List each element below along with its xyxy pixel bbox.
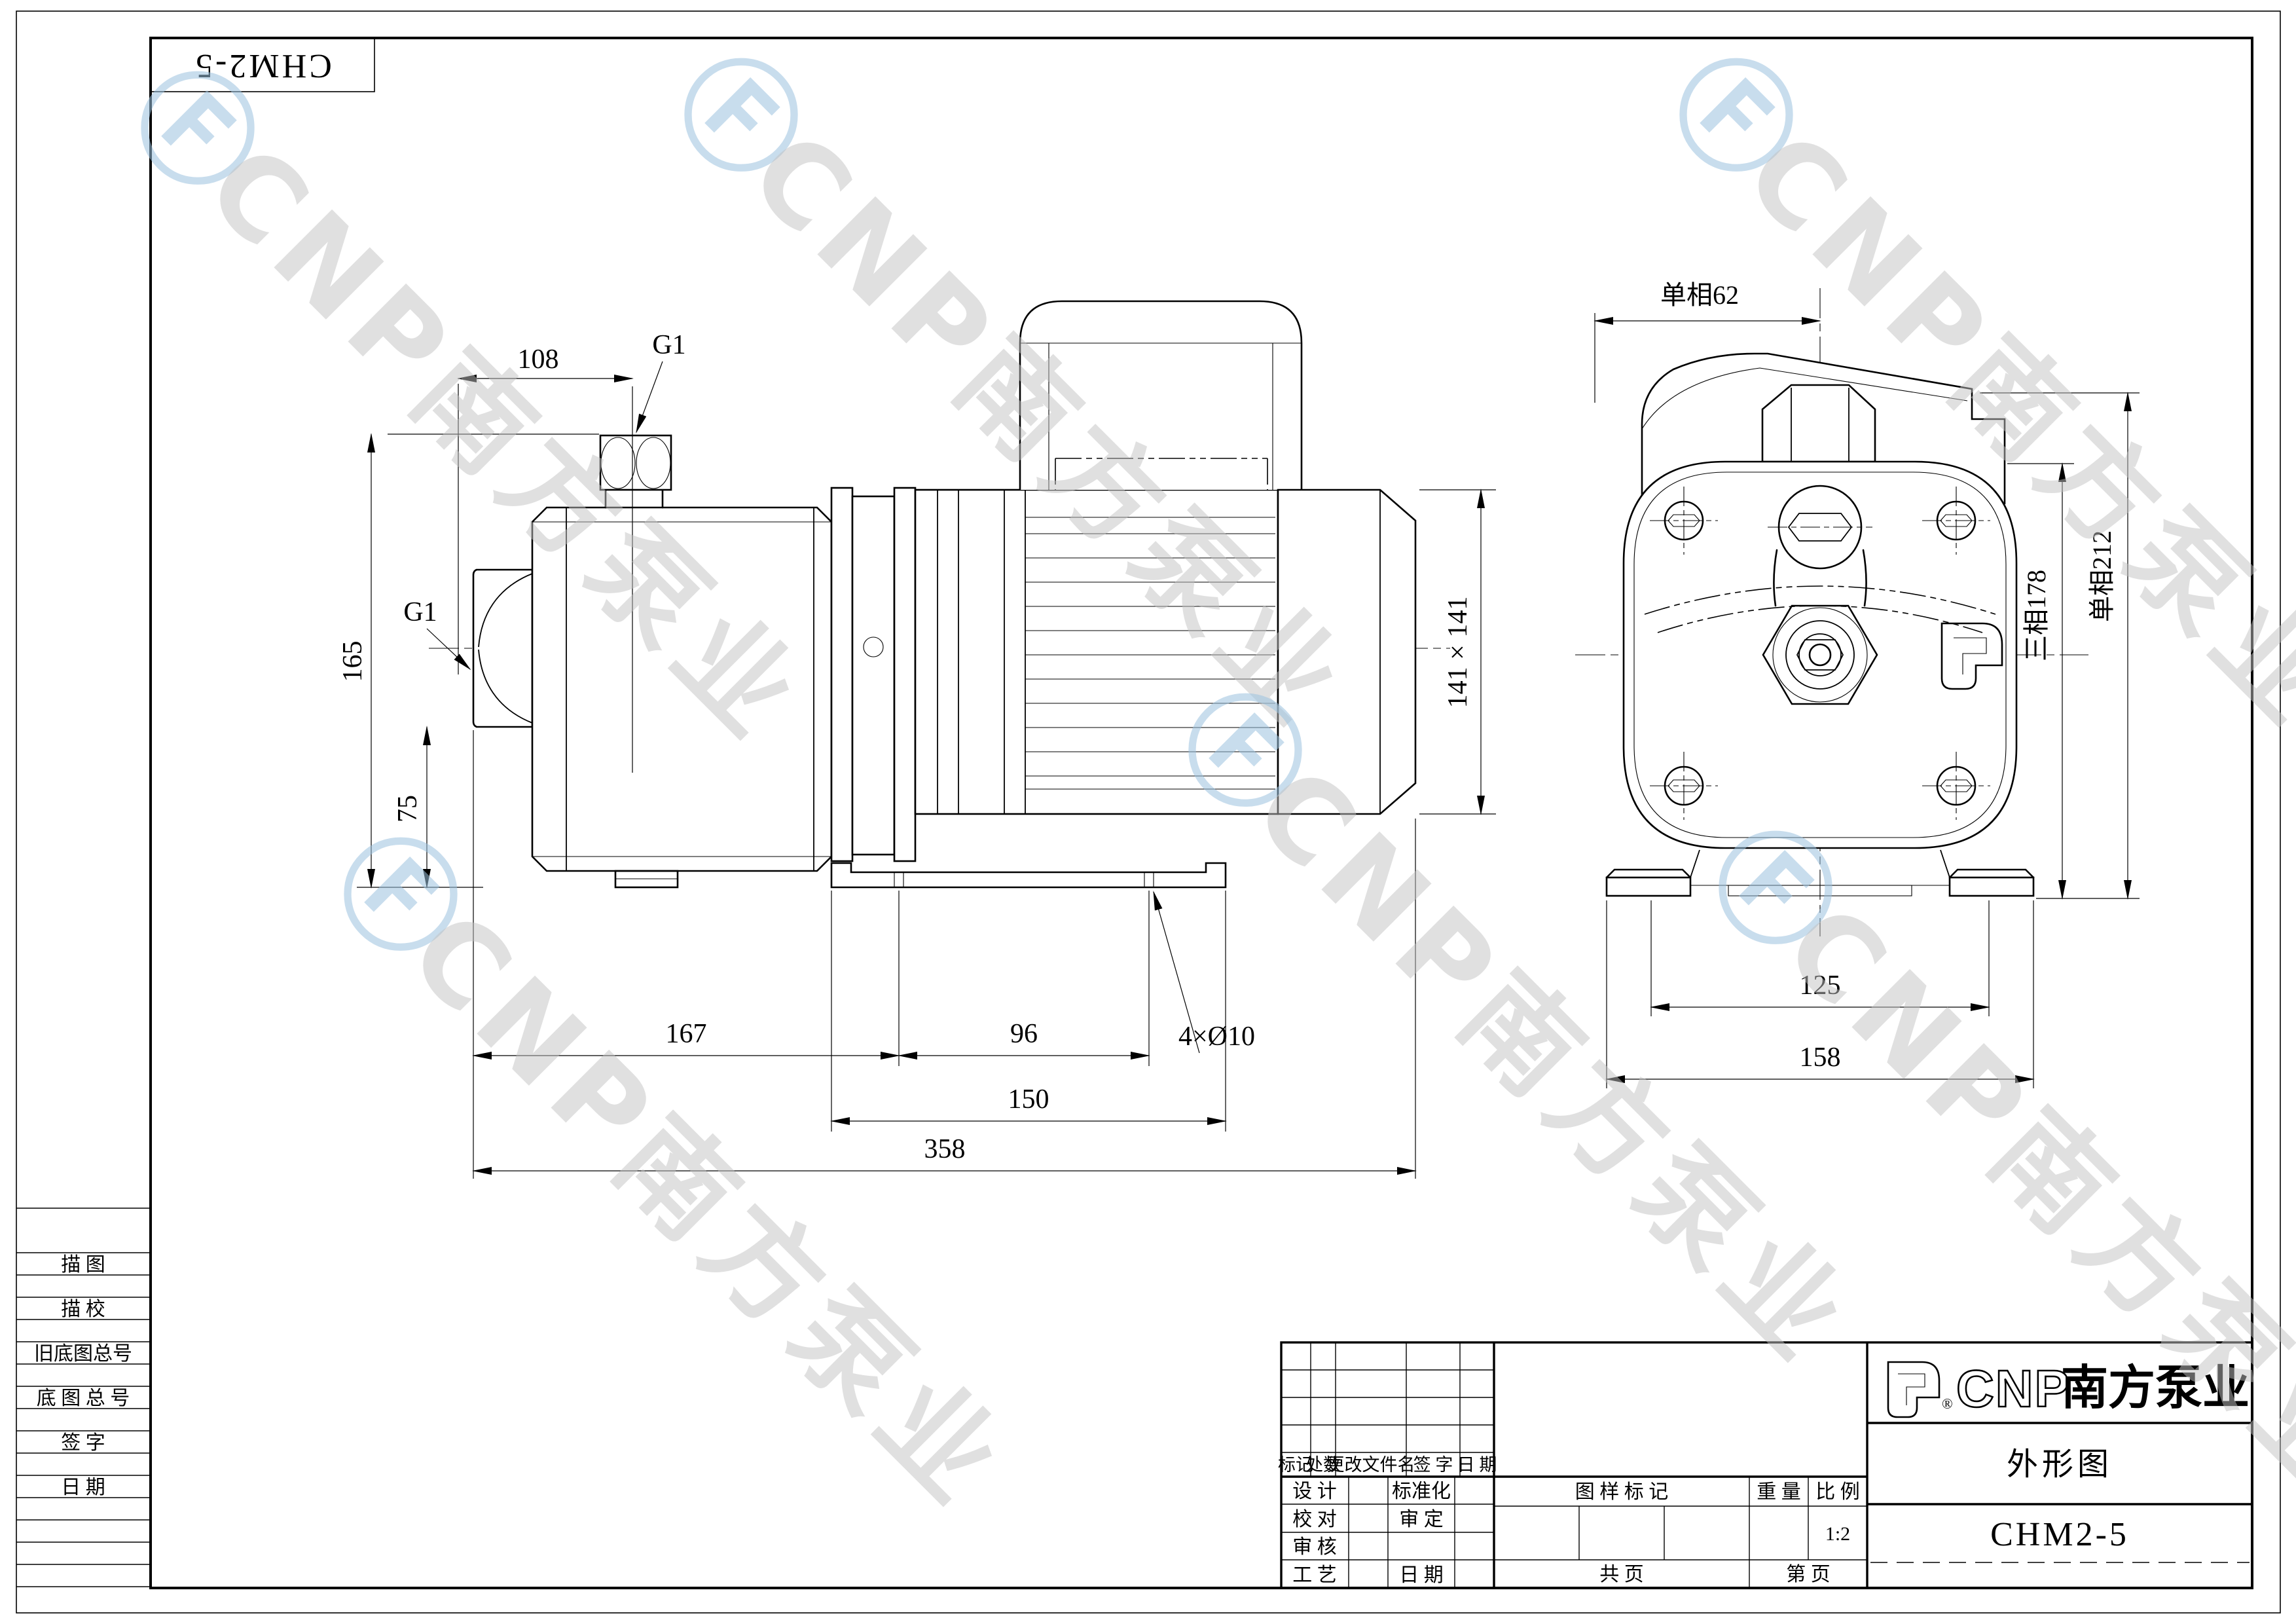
dim-g1-discharge: G1 [652, 330, 685, 360]
sig-approve: 审 定 [1399, 1509, 1444, 1530]
cnp-logo-glyph [1888, 1362, 1939, 1417]
sig-process: 工 艺 [1292, 1564, 1337, 1586]
watermark-text: CNP南方泵业 [385, 887, 1032, 1534]
dim-foot-holes: 4×Ø10 [1178, 1022, 1255, 1052]
stamp-total-pages: 共 页 [1599, 1564, 1644, 1585]
stamp-page-no: 第 页 [1786, 1564, 1831, 1585]
margin-label-old-master-no: 旧底图总号 [34, 1343, 132, 1365]
dim-141x141: 141 × 141 [1443, 597, 1473, 709]
sig-audit: 审 核 [1292, 1536, 1337, 1558]
dim-single-phase-62: 单相62 [1660, 280, 1739, 310]
dim-358: 358 [924, 1134, 966, 1164]
sig-proof: 校 对 [1292, 1509, 1337, 1530]
base-plate [831, 863, 1226, 887]
rev-header-date: 日 期 [1457, 1455, 1497, 1475]
dim-g1-suction: G1 [403, 597, 437, 627]
stamp-scale: 比 例 [1815, 1481, 1860, 1503]
dim-165: 165 [338, 641, 368, 682]
watermark-text: CNP南方泵业 [1760, 880, 2296, 1527]
registered-mark: ® [1942, 1395, 1953, 1412]
engineering-drawing: CHM2-5 描 图 描 校 旧底图总号 底 图 总 号 签 字 [0, 0, 2296, 1624]
dim-167: 167 [666, 1019, 707, 1049]
drawing-title: 外形图 [2007, 1447, 2113, 1482]
discharge-hex-end [1762, 385, 1875, 462]
stamp-drawing-mark: 图 样 标 记 [1575, 1481, 1669, 1503]
sig-date: 日 期 [1399, 1564, 1444, 1586]
margin-label-trace: 描 图 [61, 1254, 105, 1276]
dim-150: 150 [1008, 1084, 1049, 1115]
stamp-scale-value: 1:2 [1825, 1523, 1850, 1545]
margin-label-trace-check: 描 校 [61, 1299, 105, 1320]
left-margin-blocks: 描 图 描 校 旧底图总号 底 图 总 号 签 字 日 期 [16, 1208, 151, 1587]
suction-port-hex [473, 570, 532, 727]
stamp-weight: 重 量 [1757, 1481, 1801, 1503]
drawing-number: CHM2-5 [1990, 1516, 2129, 1553]
brand-cnp: CNP [1956, 1359, 2071, 1418]
sig-standardize: 标准化 [1392, 1481, 1451, 1502]
dim-three-phase-178: 三相178 [2022, 570, 2051, 661]
margin-label-master-no: 底 图 总 号 [37, 1388, 130, 1409]
lantern-bracket [831, 488, 915, 861]
title-block: 标记 处数 更改文件名 签 字 日 期 设 计 标准化 校 对 审 定 审 核 … [1278, 1342, 2252, 1588]
rev-header-sign: 签 字 [1413, 1455, 1453, 1475]
dim-96: 96 [1010, 1019, 1038, 1049]
drawing-sheet: CHM2-5 描 图 描 校 旧底图总号 底 图 总 号 签 字 [0, 0, 2296, 1624]
rev-header-file: 更改文件名 [1327, 1455, 1415, 1475]
sig-design: 设 计 [1292, 1481, 1337, 1502]
margin-label-signature: 签 字 [61, 1432, 105, 1454]
margin-label-date: 日 期 [61, 1477, 105, 1498]
